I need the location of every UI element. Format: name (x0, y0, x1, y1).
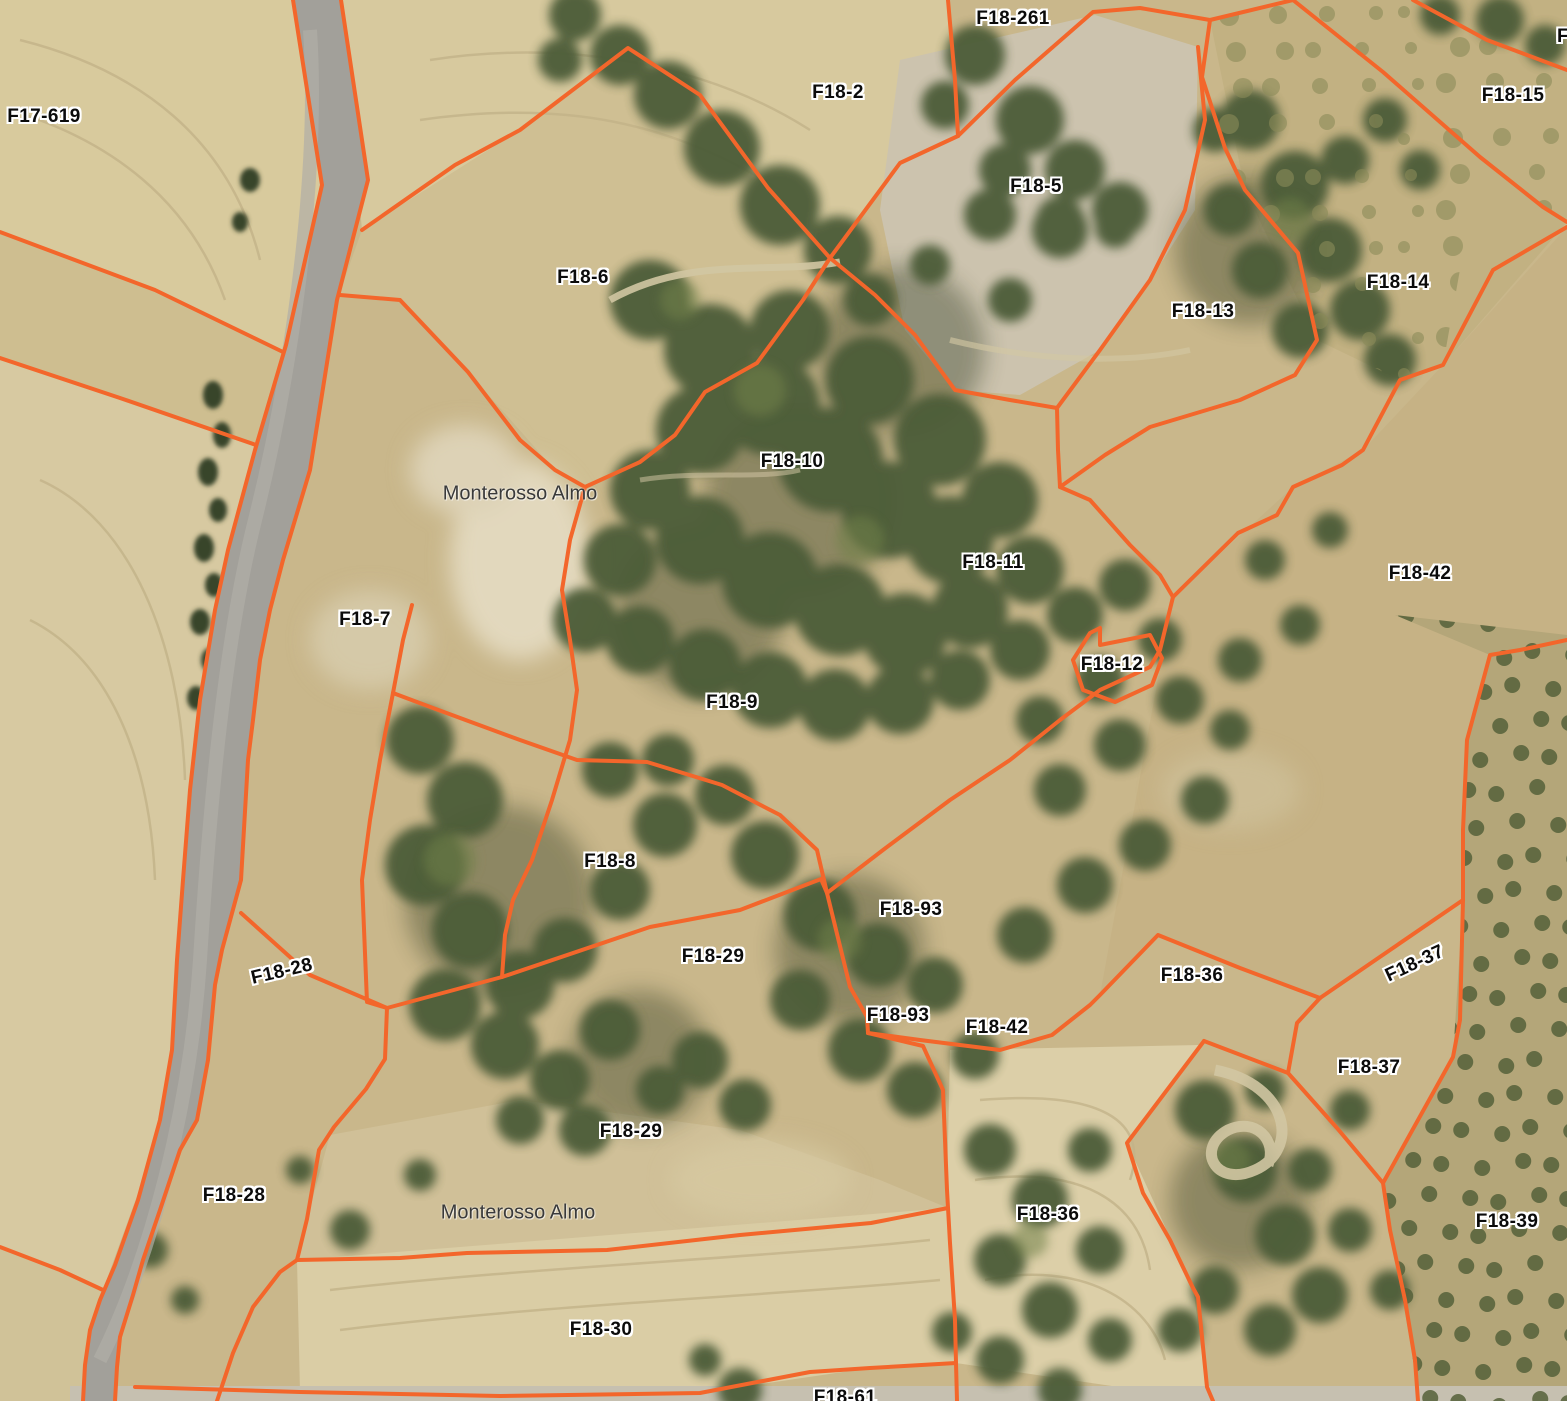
map-viewport[interactable]: F17-619F18-261F18-2FF18-15F18-5F18-6F18-… (0, 0, 1567, 1401)
satellite-map-canvas[interactable] (0, 0, 1567, 1401)
parcel-boundary-line (956, 1363, 957, 1401)
